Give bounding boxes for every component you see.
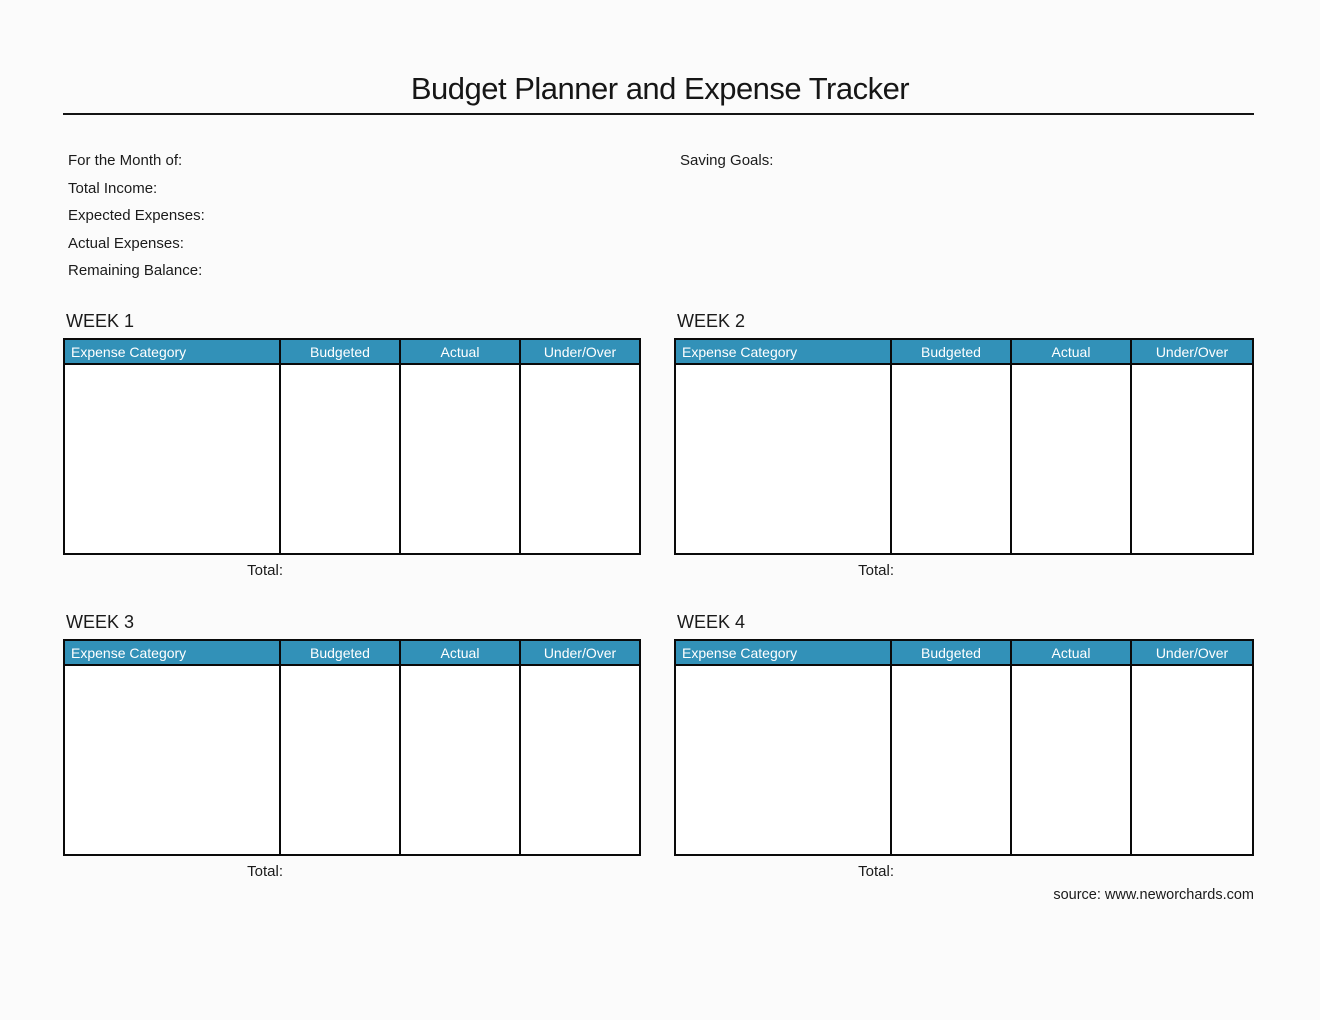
week-3-total-label: Total: bbox=[63, 863, 283, 880]
cell-budgeted bbox=[892, 666, 1012, 854]
budget-planner-page: Budget Planner and Expense Tracker For t… bbox=[0, 0, 1320, 1020]
header-cell-budgeted: Budgeted bbox=[892, 340, 1012, 365]
header-cell-under-over: Under/Over bbox=[1132, 641, 1252, 666]
cell-under-over bbox=[521, 365, 639, 553]
header-cell-under-over: Under/Over bbox=[521, 641, 639, 666]
header-cell-budgeted: Budgeted bbox=[281, 641, 401, 666]
title-divider bbox=[63, 113, 1254, 115]
week-2-section: WEEK 2 Expense Category Budgeted Actual … bbox=[674, 311, 1254, 579]
week-2-table: Expense Category Budgeted Actual Under/O… bbox=[674, 338, 1254, 555]
table-header-row: Expense Category Budgeted Actual Under/O… bbox=[676, 641, 1252, 666]
table-body bbox=[65, 666, 639, 854]
cell-actual bbox=[401, 666, 521, 854]
cell-expense-category bbox=[676, 666, 892, 854]
cell-expense-category bbox=[65, 365, 281, 553]
header-cell-expense-category: Expense Category bbox=[65, 340, 281, 365]
week-4-section: WEEK 4 Expense Category Budgeted Actual … bbox=[674, 612, 1254, 880]
saving-goals-label: Saving Goals: bbox=[680, 147, 773, 175]
cell-actual bbox=[401, 365, 521, 553]
cell-under-over bbox=[521, 666, 639, 854]
remaining-balance-label: Remaining Balance: bbox=[68, 257, 205, 285]
cell-expense-category bbox=[65, 666, 281, 854]
cell-under-over bbox=[1132, 666, 1252, 854]
month-field-label: For the Month of: bbox=[68, 147, 205, 175]
cell-actual bbox=[1012, 365, 1132, 553]
header-cell-budgeted: Budgeted bbox=[281, 340, 401, 365]
expected-expenses-label: Expected Expenses: bbox=[68, 202, 205, 230]
header-cell-under-over: Under/Over bbox=[521, 340, 639, 365]
table-body bbox=[676, 365, 1252, 553]
table-body bbox=[676, 666, 1252, 854]
cell-budgeted bbox=[281, 365, 401, 553]
cell-actual bbox=[1012, 666, 1132, 854]
week-1-total-label: Total: bbox=[63, 562, 283, 579]
week-2-title: WEEK 2 bbox=[677, 311, 1254, 331]
week-3-section: WEEK 3 Expense Category Budgeted Actual … bbox=[63, 612, 641, 880]
week-1-section: WEEK 1 Expense Category Budgeted Actual … bbox=[63, 311, 641, 579]
week-1-title: WEEK 1 bbox=[66, 311, 641, 331]
summary-fields: For the Month of: Total Income: Expected… bbox=[68, 147, 205, 285]
week-2-total-label: Total: bbox=[674, 562, 894, 579]
cell-budgeted bbox=[892, 365, 1012, 553]
header-cell-budgeted: Budgeted bbox=[892, 641, 1012, 666]
header-cell-actual: Actual bbox=[401, 340, 521, 365]
header-cell-actual: Actual bbox=[401, 641, 521, 666]
page-title: Budget Planner and Expense Tracker bbox=[0, 71, 1320, 107]
cell-under-over bbox=[1132, 365, 1252, 553]
header-cell-expense-category: Expense Category bbox=[676, 641, 892, 666]
header-cell-expense-category: Expense Category bbox=[676, 340, 892, 365]
table-header-row: Expense Category Budgeted Actual Under/O… bbox=[676, 340, 1252, 365]
week-3-table: Expense Category Budgeted Actual Under/O… bbox=[63, 639, 641, 856]
table-header-row: Expense Category Budgeted Actual Under/O… bbox=[65, 641, 639, 666]
week-4-title: WEEK 4 bbox=[677, 612, 1254, 632]
table-body bbox=[65, 365, 639, 553]
header-cell-actual: Actual bbox=[1012, 340, 1132, 365]
week-4-table: Expense Category Budgeted Actual Under/O… bbox=[674, 639, 1254, 856]
cell-expense-category bbox=[676, 365, 892, 553]
header-cell-expense-category: Expense Category bbox=[65, 641, 281, 666]
header-cell-actual: Actual bbox=[1012, 641, 1132, 666]
actual-expenses-label: Actual Expenses: bbox=[68, 230, 205, 258]
table-header-row: Expense Category Budgeted Actual Under/O… bbox=[65, 340, 639, 365]
week-4-total-label: Total: bbox=[674, 863, 894, 880]
total-income-label: Total Income: bbox=[68, 175, 205, 203]
week-1-table: Expense Category Budgeted Actual Under/O… bbox=[63, 338, 641, 555]
week-3-title: WEEK 3 bbox=[66, 612, 641, 632]
source-credit: source: www.neworchards.com bbox=[1053, 887, 1254, 903]
cell-budgeted bbox=[281, 666, 401, 854]
header-cell-under-over: Under/Over bbox=[1132, 340, 1252, 365]
